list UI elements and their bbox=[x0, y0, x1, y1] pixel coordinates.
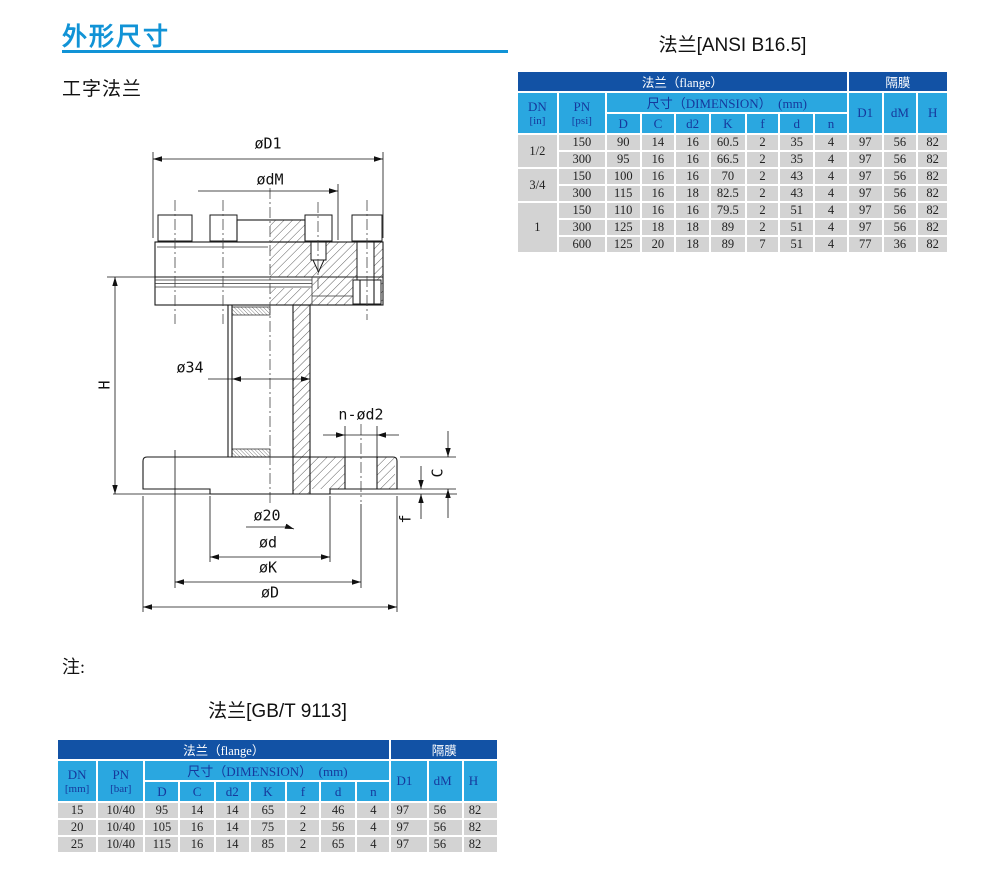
table-header-cell: d bbox=[780, 114, 813, 133]
table-cell: 89 bbox=[711, 237, 745, 252]
table-row: 6001252018897514773682 bbox=[518, 237, 947, 252]
table-cell: 35 bbox=[780, 135, 813, 150]
table-cell: 82 bbox=[918, 203, 947, 218]
table-cell: 300 bbox=[559, 152, 605, 167]
table-cell: 300 bbox=[559, 186, 605, 201]
table-cell: 110 bbox=[607, 203, 640, 218]
dim-label-nd2: n-ød2 bbox=[338, 408, 383, 423]
table-cell: 1/2 bbox=[518, 135, 557, 167]
dim-label-f: f bbox=[399, 514, 414, 523]
table-cell: 4 bbox=[815, 135, 847, 150]
table-header-cell: D1 bbox=[849, 93, 882, 133]
table-cell: 14 bbox=[180, 803, 213, 818]
table-header-cell: dM bbox=[884, 93, 917, 133]
table-header-cell: K bbox=[251, 782, 285, 801]
table-cell: 85 bbox=[251, 837, 285, 852]
dim-label-big-d: øD bbox=[261, 586, 279, 601]
table-cell: 4 bbox=[815, 169, 847, 184]
table-cell: 65 bbox=[321, 837, 355, 852]
table-row: 1510/40951414652464975682 bbox=[58, 803, 497, 818]
dim-label-d1: øD1 bbox=[254, 137, 281, 152]
table-cell: 10/40 bbox=[98, 820, 143, 835]
table-header-cell: D bbox=[607, 114, 640, 133]
dim-label-d: ød bbox=[259, 536, 277, 551]
table-cell: 95 bbox=[145, 803, 178, 818]
note-label: 注: bbox=[62, 653, 85, 679]
table-header-cell: n bbox=[815, 114, 847, 133]
table-cell: 97 bbox=[391, 803, 426, 818]
table-cell: 4 bbox=[815, 220, 847, 235]
table-cell: 15 bbox=[58, 803, 96, 818]
table-cell: 51 bbox=[780, 237, 813, 252]
table-cell: 51 bbox=[780, 203, 813, 218]
gbt-table-title: 法兰[GB/T 9113] bbox=[56, 696, 499, 723]
table-cell: 16 bbox=[642, 169, 675, 184]
table-header-cell: PN[bar] bbox=[98, 761, 143, 801]
table-cell: 56 bbox=[884, 169, 917, 184]
table-cell: 2 bbox=[747, 203, 779, 218]
table-row: 30095161666.52354975682 bbox=[518, 152, 947, 167]
table-header-row: DN[mm]PN[bar]尺寸（DIMENSION） (mm)D1dMH bbox=[58, 761, 497, 780]
table-cell: 16 bbox=[676, 203, 709, 218]
dim-label-20: ø20 bbox=[253, 509, 280, 524]
table-cell: 56 bbox=[884, 135, 917, 150]
table-group-row: 法兰（flange）隔膜 bbox=[58, 740, 497, 759]
table-cell: 20 bbox=[642, 237, 675, 252]
table-cell: 25 bbox=[58, 837, 96, 852]
table-cell: 16 bbox=[180, 837, 213, 852]
table-header-cell: DN[in] bbox=[518, 93, 557, 133]
table-header-cell: D1 bbox=[391, 761, 426, 801]
table-cell: 95 bbox=[607, 152, 640, 167]
table-cell: 4 bbox=[357, 820, 389, 835]
table-cell: 75 bbox=[251, 820, 285, 835]
table-cell: 100 bbox=[607, 169, 640, 184]
table-cell: 97 bbox=[391, 820, 426, 835]
table-cell: 82 bbox=[918, 237, 947, 252]
table-cell: 14 bbox=[216, 837, 249, 852]
table-row: 300115161882.52434975682 bbox=[518, 186, 947, 201]
table-cell: 4 bbox=[815, 203, 847, 218]
table-cell: 77 bbox=[849, 237, 882, 252]
table-cell: 16 bbox=[676, 135, 709, 150]
table-cell: 16 bbox=[642, 186, 675, 201]
table-cell: 1 bbox=[518, 203, 557, 252]
table-cell: 18 bbox=[676, 237, 709, 252]
table-cell: 82 bbox=[918, 135, 947, 150]
table-cell: 18 bbox=[676, 220, 709, 235]
section-hatch bbox=[270, 220, 395, 494]
table-cell: 89 bbox=[711, 220, 745, 235]
table-cell: 56 bbox=[429, 820, 462, 835]
table-cell: 56 bbox=[884, 220, 917, 235]
table-cell: 65 bbox=[251, 803, 285, 818]
table-cell: 125 bbox=[607, 237, 640, 252]
table-cell: 82 bbox=[918, 220, 947, 235]
table-cell: 82 bbox=[464, 803, 497, 818]
table-cell: 150 bbox=[559, 203, 605, 218]
table-cell: 82.5 bbox=[711, 186, 745, 201]
table-row: 3/41501001616702434975682 bbox=[518, 169, 947, 184]
table-cell: 56 bbox=[321, 820, 355, 835]
table-header-cell: 法兰（flange） bbox=[58, 740, 389, 759]
table-cell: 20 bbox=[58, 820, 96, 835]
table-cell: 150 bbox=[559, 169, 605, 184]
table-cell: 2 bbox=[287, 820, 319, 835]
table-cell: 16 bbox=[676, 169, 709, 184]
table-cell: 125 bbox=[607, 220, 640, 235]
table-cell: 10/40 bbox=[98, 803, 143, 818]
table-cell: 56 bbox=[884, 152, 917, 167]
table-cell: 4 bbox=[357, 837, 389, 852]
table-header-cell: n bbox=[357, 782, 389, 801]
table-cell: 4 bbox=[357, 803, 389, 818]
table-cell: 10/40 bbox=[98, 837, 143, 852]
table-cell: 70 bbox=[711, 169, 745, 184]
table-cell: 16 bbox=[642, 152, 675, 167]
table-cell: 150 bbox=[559, 135, 605, 150]
table-cell: 2 bbox=[747, 186, 779, 201]
table-cell: 97 bbox=[849, 135, 882, 150]
table-cell: 4 bbox=[815, 237, 847, 252]
table-cell: 115 bbox=[607, 186, 640, 201]
table-group-row: 法兰（flange）隔膜 bbox=[518, 72, 947, 91]
dim-label-k: øK bbox=[259, 561, 277, 576]
table-header-cell: d2 bbox=[216, 782, 249, 801]
table-row: 3001251818892514975682 bbox=[518, 220, 947, 235]
table-cell: 16 bbox=[642, 203, 675, 218]
table-cell: 51 bbox=[780, 220, 813, 235]
table-cell: 2 bbox=[747, 152, 779, 167]
dim-label-h: H bbox=[98, 380, 113, 389]
technical-drawing: øD1 ødM ø34 n-ød2 ø20 ød øK øD H C f bbox=[60, 130, 480, 650]
table-row: 1150110161679.52514975682 bbox=[518, 203, 947, 218]
ansi-table-title: 法兰[ANSI B16.5] bbox=[518, 30, 947, 57]
table-cell: 60.5 bbox=[711, 135, 745, 150]
dim-label-34: ø34 bbox=[176, 361, 203, 376]
table-header-cell: 尺寸（DIMENSION） (mm) bbox=[607, 93, 847, 112]
table-header-row: DN[in]PN[psi]尺寸（DIMENSION） (mm)D1dMH bbox=[518, 93, 947, 112]
table-cell: 97 bbox=[849, 186, 882, 201]
table-cell: 66.5 bbox=[711, 152, 745, 167]
table-cell: 105 bbox=[145, 820, 178, 835]
datasheet-page: 外形尺寸 工字法兰 法兰[ANSI B16.5] 法兰（flange）隔膜DN[… bbox=[0, 0, 1000, 888]
title-underline bbox=[62, 50, 508, 53]
table-header-cell: K bbox=[711, 114, 745, 133]
table-header-cell: H bbox=[918, 93, 947, 133]
table-row: 2510/401151614852654975682 bbox=[58, 837, 497, 852]
table-header-cell: 隔膜 bbox=[391, 740, 497, 759]
table-cell: 18 bbox=[642, 220, 675, 235]
table-cell: 3/4 bbox=[518, 169, 557, 201]
table-cell: 14 bbox=[216, 803, 249, 818]
table-cell: 2 bbox=[287, 803, 319, 818]
table-cell: 56 bbox=[429, 837, 462, 852]
table-row: 2010/401051614752564975682 bbox=[58, 820, 497, 835]
ansi-flange-table: 法兰（flange）隔膜DN[in]PN[psi]尺寸（DIMENSION） (… bbox=[516, 70, 949, 254]
table-cell: 97 bbox=[391, 837, 426, 852]
table-cell: 18 bbox=[676, 186, 709, 201]
table-cell: 2 bbox=[747, 135, 779, 150]
table-cell: 56 bbox=[429, 803, 462, 818]
table-cell: 7 bbox=[747, 237, 779, 252]
table-header-cell: DN[mm] bbox=[58, 761, 96, 801]
table-cell: 56 bbox=[884, 203, 917, 218]
table-header-cell: d2 bbox=[676, 114, 709, 133]
table-header-cell: dM bbox=[429, 761, 462, 801]
table-cell: 97 bbox=[849, 203, 882, 218]
table-cell: 43 bbox=[780, 186, 813, 201]
table-cell: 46 bbox=[321, 803, 355, 818]
table-cell: 300 bbox=[559, 220, 605, 235]
table-cell: 16 bbox=[180, 820, 213, 835]
table-cell: 97 bbox=[849, 169, 882, 184]
table-cell: 82 bbox=[918, 169, 947, 184]
table-cell: 4 bbox=[815, 186, 847, 201]
dim-label-c: C bbox=[431, 468, 446, 477]
table-cell: 36 bbox=[884, 237, 917, 252]
table-cell: 43 bbox=[780, 169, 813, 184]
table-header-cell: PN[psi] bbox=[559, 93, 605, 133]
table-header-cell: C bbox=[180, 782, 213, 801]
table-cell: 2 bbox=[747, 169, 779, 184]
table-header-cell: f bbox=[287, 782, 319, 801]
gbt-flange-table: 法兰（flange）隔膜DN[mm]PN[bar]尺寸（DIMENSION） (… bbox=[56, 738, 499, 854]
table-header-cell: 隔膜 bbox=[849, 72, 947, 91]
dim-label-dm: ødM bbox=[256, 173, 283, 188]
table-header-cell: f bbox=[747, 114, 779, 133]
table-header-cell: d bbox=[321, 782, 355, 801]
table-cell: 82 bbox=[918, 152, 947, 167]
table-cell: 82 bbox=[464, 837, 497, 852]
table-cell: 56 bbox=[884, 186, 917, 201]
table-cell: 2 bbox=[287, 837, 319, 852]
table-cell: 600 bbox=[559, 237, 605, 252]
table-cell: 115 bbox=[145, 837, 178, 852]
table-row: 1/215090141660.52354975682 bbox=[518, 135, 947, 150]
table-cell: 14 bbox=[216, 820, 249, 835]
table-header-cell: 法兰（flange） bbox=[518, 72, 847, 91]
table-header-cell: H bbox=[464, 761, 497, 801]
table-header-cell: D bbox=[145, 782, 178, 801]
table-cell: 82 bbox=[918, 186, 947, 201]
table-header-cell: 尺寸（DIMENSION） (mm) bbox=[145, 761, 389, 780]
table-cell: 90 bbox=[607, 135, 640, 150]
product-subtitle: 工字法兰 bbox=[62, 74, 142, 101]
table-cell: 97 bbox=[849, 220, 882, 235]
table-cell: 14 bbox=[642, 135, 675, 150]
table-cell: 2 bbox=[747, 220, 779, 235]
table-header-cell: C bbox=[642, 114, 675, 133]
table-cell: 82 bbox=[464, 820, 497, 835]
page-title: 外形尺寸 bbox=[62, 17, 170, 53]
table-cell: 35 bbox=[780, 152, 813, 167]
table-cell: 97 bbox=[849, 152, 882, 167]
table-cell: 16 bbox=[676, 152, 709, 167]
table-cell: 79.5 bbox=[711, 203, 745, 218]
table-cell: 4 bbox=[815, 152, 847, 167]
knurl-bands bbox=[232, 307, 270, 457]
